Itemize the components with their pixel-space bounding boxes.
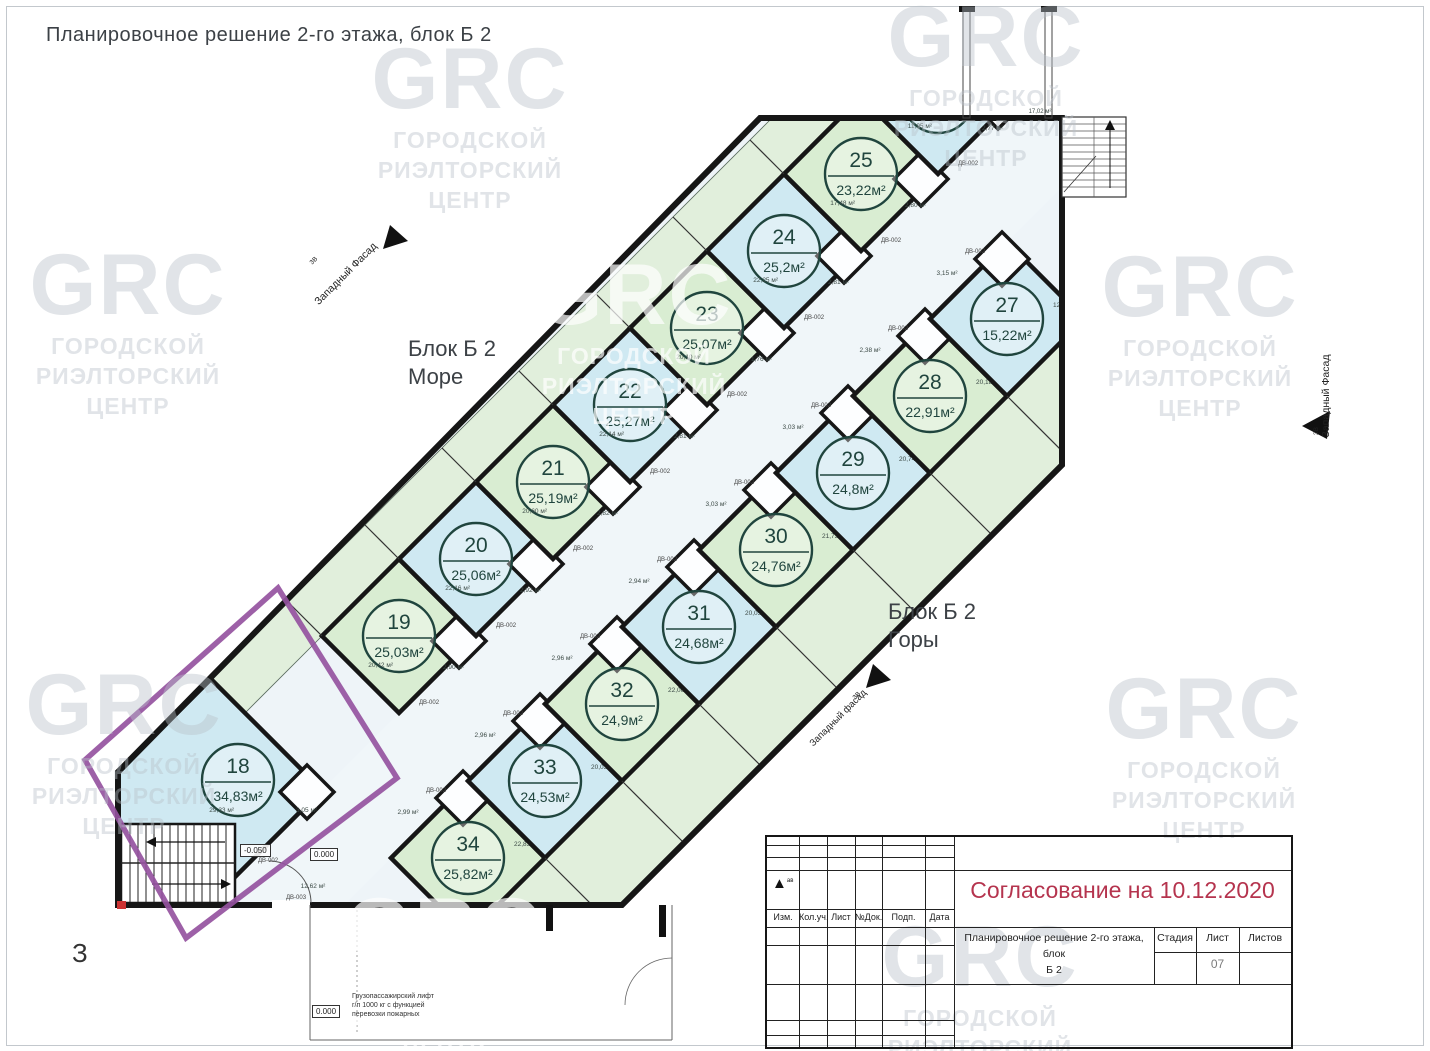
tb-col-data: Дата	[925, 912, 954, 922]
tb-col-ndok: №Док.	[855, 912, 882, 922]
door-label: ДВ-002	[657, 557, 678, 563]
unit-number: 26	[926, 72, 949, 95]
bath-dimension: 2,81 м²	[828, 279, 850, 286]
lift-note-line: Грузопассажирский лифт	[352, 992, 434, 1001]
bath-dimension: 3,03 м²	[705, 501, 727, 508]
room-dimension: 20,10 м²	[676, 354, 702, 361]
unit-area: 25,82м²	[443, 866, 493, 882]
unit-number: 33	[533, 756, 556, 779]
room-dimension: 22,25 м²	[753, 277, 779, 284]
tb-line	[882, 837, 883, 1047]
tb-col-izm: Изм.	[767, 912, 799, 922]
door-label: ДВ-002	[573, 546, 594, 552]
block-label-mountains: Блок Б 2	[888, 599, 976, 624]
bath-dimension: 2,38 м²	[859, 347, 881, 354]
sheet-number: 07	[1196, 957, 1239, 971]
unit-area: 23,22м²	[836, 182, 886, 198]
title-block: Согласование на 10.12.2020 Планировочное…	[765, 835, 1293, 1049]
bath-dimension: 2,90 м²	[443, 664, 465, 671]
bath-dimension: 2,96 м²	[551, 655, 573, 662]
tb-line	[954, 837, 955, 1047]
bath-dimension: 2,77 м²	[982, 125, 1004, 132]
tb-line	[1154, 927, 1155, 984]
unit-number: 30	[764, 525, 787, 548]
facade-axis: 3В	[309, 256, 320, 267]
door-label: ДВ-002	[804, 315, 825, 321]
bath-dimension: 2,80 м²	[905, 202, 927, 209]
unit-area: 22,91м²	[905, 404, 955, 420]
bath-dimension: 2,96 м²	[474, 732, 496, 739]
unit-area: 24,68м²	[674, 635, 724, 651]
tb-line	[1196, 927, 1197, 984]
door-label: ДВ-002	[426, 788, 447, 794]
unit-area: 25,27м²	[605, 413, 655, 429]
room-dimension: 12,30 м²	[1053, 302, 1079, 309]
lift-note: Грузопассажирский лифт г/п 1000 кг с фун…	[352, 992, 434, 1019]
sheet-label: Лист	[1196, 932, 1239, 944]
tb-line	[799, 837, 800, 1047]
door-label: ДВ-002	[811, 403, 832, 409]
lobby-dimension: 12,62 м²	[301, 883, 327, 890]
unit-number: 19	[387, 611, 410, 634]
block-label-sea-2: Море	[408, 364, 463, 389]
tb-col-podp: Подп.	[882, 912, 925, 922]
door-label: ДВ-002	[881, 238, 902, 244]
room-dimension: 22,14 м²	[599, 431, 625, 438]
unit-number: 24	[772, 226, 796, 249]
elevation-mark-ground: 0.000	[312, 1005, 340, 1018]
tb-line	[1154, 952, 1291, 953]
unit-area: 25,03м²	[374, 644, 424, 660]
tb-line	[954, 984, 1291, 985]
bath-dimension: 3,15 м²	[936, 270, 958, 277]
wall-stub	[1045, 8, 1052, 118]
lift-note-line: перевозки пожарных	[352, 1010, 434, 1019]
bath-dimension: 3,03 м²	[782, 424, 804, 431]
bath-dimension: 2,82 м²	[597, 510, 619, 517]
unit-number: 25	[849, 149, 872, 172]
facade-arrow: Западный Фасад3В	[309, 225, 408, 307]
landing-dimension: 17,02 м²	[1029, 109, 1052, 115]
wall-stub	[963, 8, 970, 118]
unit-number: 34	[456, 833, 480, 856]
room-dimension: 20,42 м²	[368, 662, 394, 669]
tb-col-koluch: Кол.уч.	[799, 912, 827, 922]
unit-area: 24,53м²	[520, 789, 570, 805]
red-mark	[117, 901, 126, 909]
unit-number: 18	[226, 755, 249, 778]
sheets-label: Листов	[1239, 932, 1291, 944]
lower-extension	[310, 905, 672, 1040]
approval-stamp: Согласование на 10.12.2020	[954, 877, 1291, 904]
exit-door-label: ДВ-003	[286, 895, 307, 901]
unit-number: 23	[695, 303, 718, 326]
facade-label: Западный Фасад	[312, 240, 379, 307]
room-dimension: 20,60 м²	[522, 508, 548, 515]
bath-dimension: 2,81 м²	[674, 433, 696, 440]
tb-line	[767, 927, 1291, 928]
door-label: ДВ-002	[727, 392, 748, 398]
bath-dimension: 2,99 м²	[397, 809, 419, 816]
unit-area: 25,07м²	[682, 336, 732, 352]
external-stairs	[1062, 117, 1126, 197]
room-dimension: 29,33 м²	[209, 807, 235, 814]
unit-number: 27	[995, 294, 1018, 317]
block-label-sea: Блок Б 2	[408, 336, 496, 361]
facade-arrow-icon	[866, 664, 891, 688]
elevation-mark-stairs: -0.050	[240, 844, 271, 857]
door-label: ДВ-002	[958, 161, 979, 167]
unit-number: 20	[464, 534, 487, 557]
door-label: ДВ-002	[650, 469, 671, 475]
bath-dimension: 2,92 м²	[520, 587, 542, 594]
unit-area: 24,8м²	[832, 481, 874, 497]
facade-axis: 3В	[1313, 427, 1320, 435]
door-label: ДВ-002	[965, 249, 986, 255]
unit-area: 15,22м²	[982, 327, 1032, 343]
unit-number: 31	[687, 602, 710, 625]
tb-line	[1239, 927, 1240, 984]
bath-dimension: 2,94 м²	[628, 578, 650, 585]
unit-number: 21	[541, 457, 564, 480]
door-label: ДВ-002	[734, 480, 755, 486]
revision-mark-icon: ▲ав	[772, 875, 793, 892]
tb-col-list: Лист	[827, 912, 855, 922]
room-dimension: 11,95 м²	[908, 123, 933, 130]
unit-number: 28	[918, 371, 941, 394]
unit-number: 29	[841, 448, 864, 471]
door-label: ДВ-002	[419, 700, 440, 706]
unit-area: 25,06м²	[451, 567, 501, 583]
facade-label: Западный Фасад	[1320, 354, 1332, 437]
facade-arrow-icon	[383, 225, 408, 249]
unit-area: 25,2м²	[763, 259, 805, 275]
door-label: ДВ-002	[503, 711, 524, 717]
tb-line	[925, 837, 926, 1047]
interior-stairs	[121, 824, 235, 903]
unit-area: 24,76м²	[751, 558, 801, 574]
bath-dimension: 1,76 м²	[751, 356, 773, 363]
revision-mark-text: ав	[787, 878, 794, 884]
facade-arrow: Западный Фасад3В	[1302, 354, 1332, 439]
bath-dimension: 3,05 м²	[296, 807, 318, 814]
doc-title-line2: Б 2	[956, 963, 1152, 979]
unit-area: 34,83м²	[213, 788, 263, 804]
unit-number: 22	[618, 380, 641, 403]
elevation-mark-entry: 0.000	[310, 848, 338, 861]
unit-area: 25,19м²	[528, 490, 578, 506]
door-label: ДВ-002	[496, 623, 517, 629]
stage-label: Стадия	[1154, 932, 1196, 944]
axis-letter: З	[72, 938, 88, 969]
tb-line	[855, 837, 856, 1047]
door-label: ДВ-002	[580, 634, 601, 640]
doc-title-line1: Планировочное решение 2-го этажа, блок	[956, 931, 1152, 963]
lift-note-line: г/п 1000 кг с функцией	[352, 1001, 434, 1010]
page-title: Планировочное решение 2-го этажа, блок Б…	[46, 24, 492, 47]
unit-number: 32	[610, 679, 633, 702]
doc-title: Планировочное решение 2-го этажа, блок Б…	[956, 931, 1152, 978]
tb-line	[827, 837, 828, 1047]
unit-area: 24,9м²	[601, 712, 643, 728]
block-label-mountains-2: Горы	[888, 627, 939, 652]
tb-line	[767, 870, 1291, 871]
room-dimension: 22,16 м²	[445, 585, 471, 592]
floor-plan-sheet: Планировочное решение 2-го этажа, блок Б…	[0, 0, 1430, 1051]
door-label: ДВ-002	[888, 326, 909, 332]
room-dimension: 17,48 м²	[830, 200, 856, 207]
